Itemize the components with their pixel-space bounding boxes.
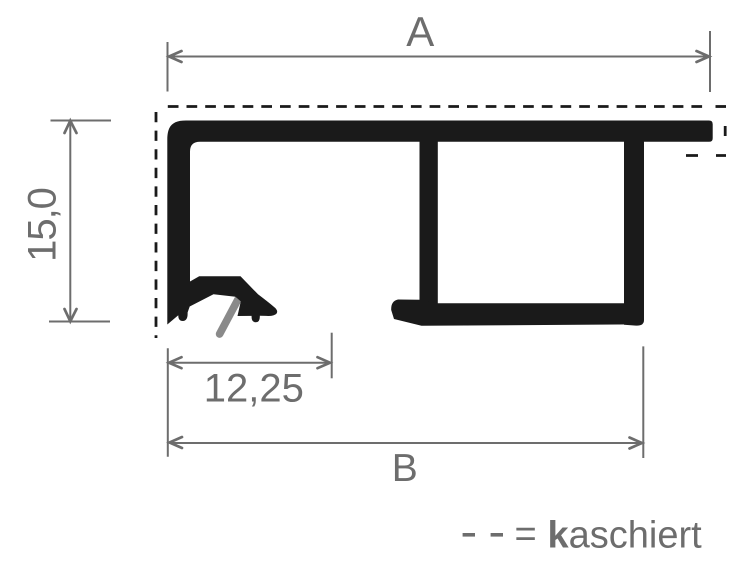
svg-text:15,0: 15,0 bbox=[21, 188, 65, 262]
svg-text:12,25: 12,25 bbox=[204, 367, 304, 411]
svg-text:=: = bbox=[515, 514, 537, 556]
svg-text:kaschiert: kaschiert bbox=[548, 515, 703, 557]
svg-text:B: B bbox=[392, 447, 418, 490]
svg-text:A: A bbox=[406, 8, 434, 55]
